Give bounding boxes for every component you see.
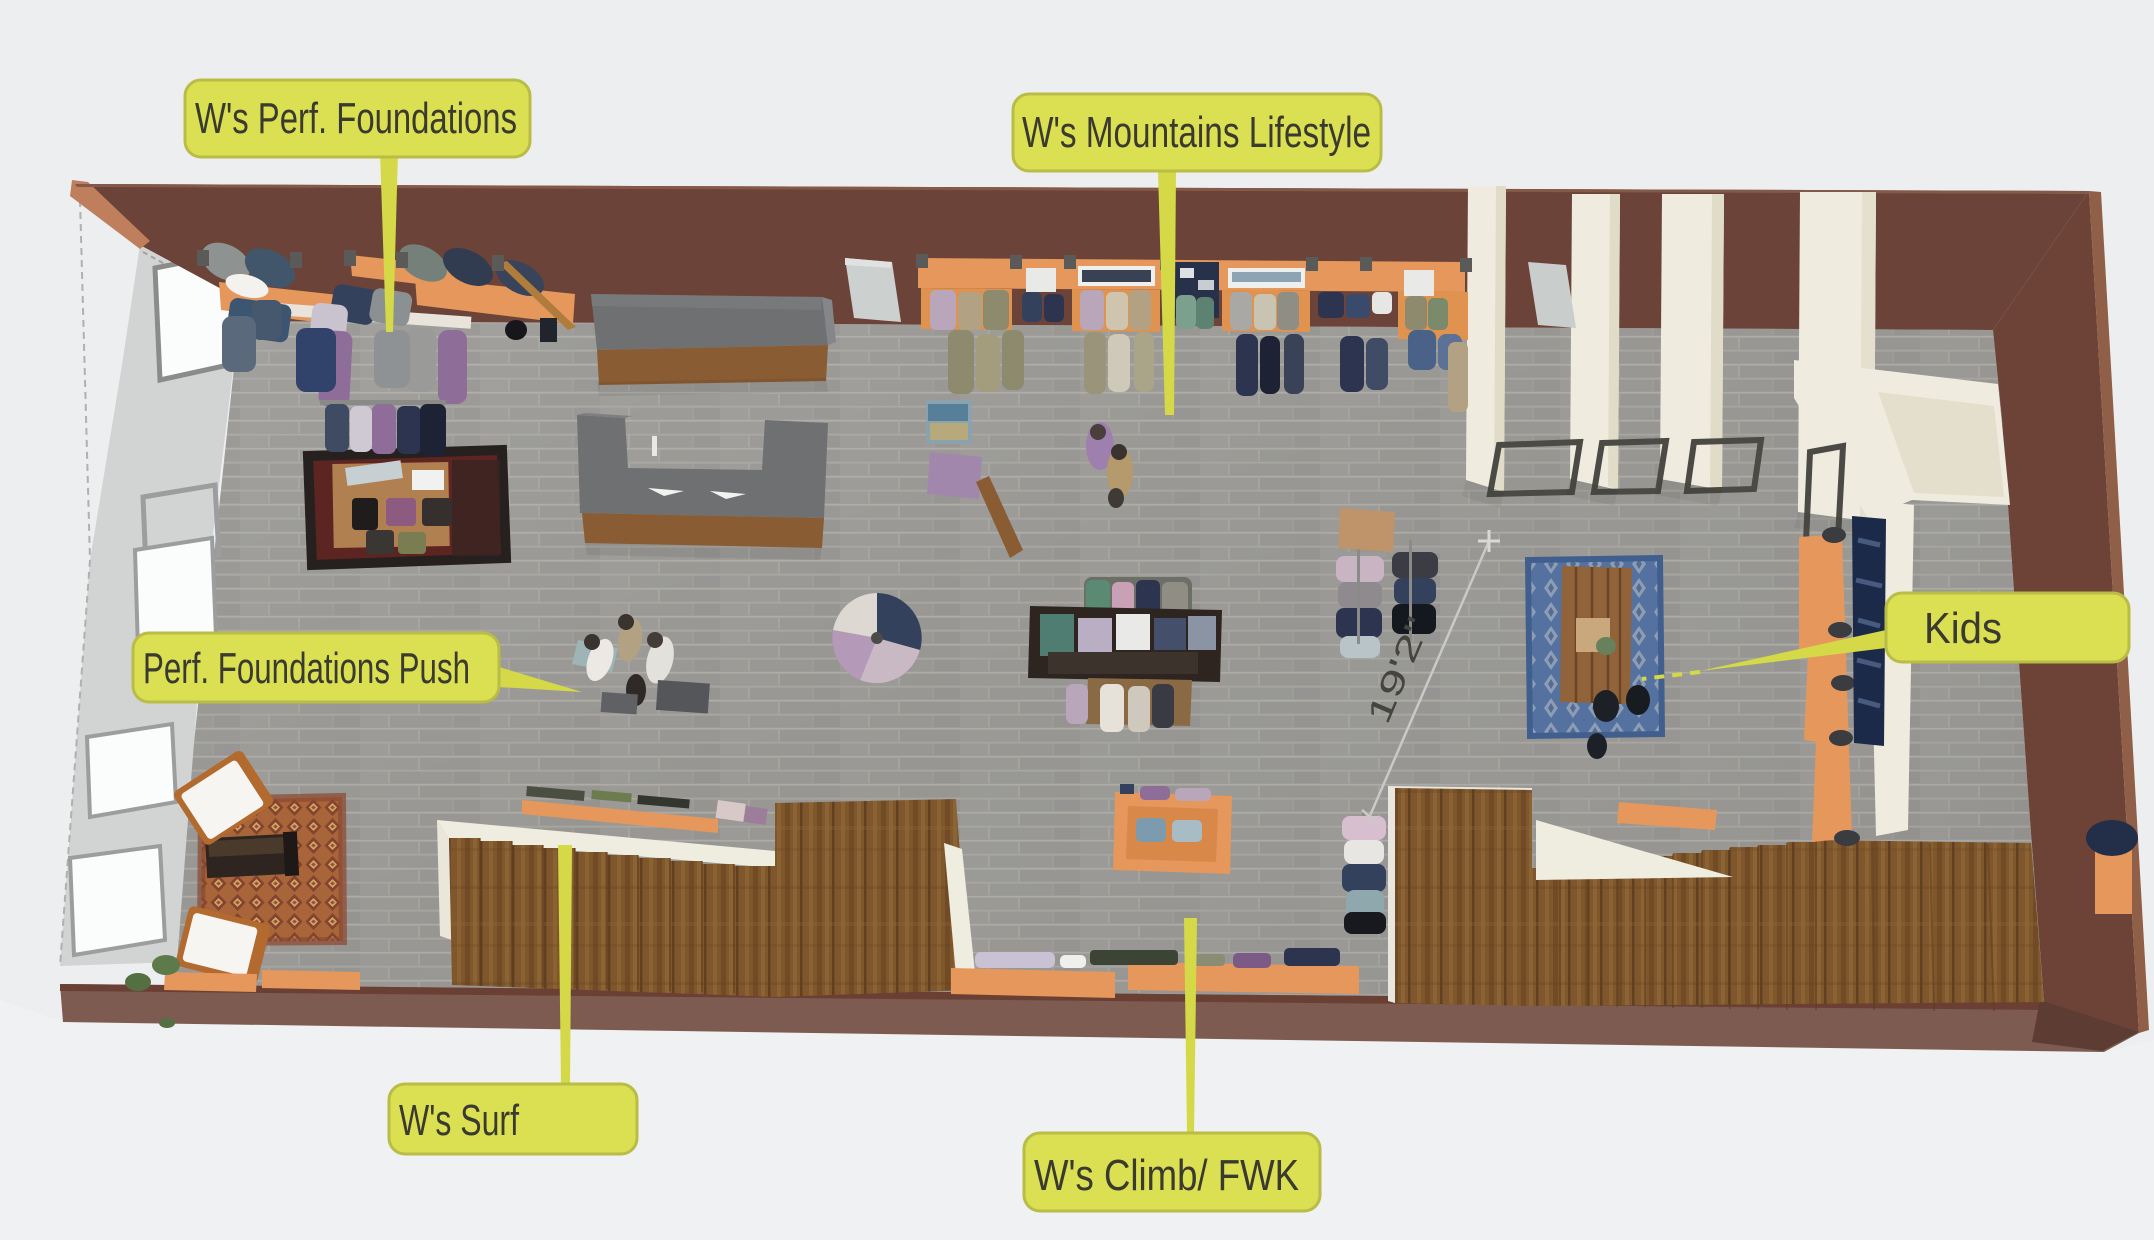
svg-text:W's Mountains Lifestyle: W's Mountains Lifestyle [1022, 108, 1371, 157]
svg-text:W's Perf. Foundations: W's Perf. Foundations [195, 94, 517, 143]
svg-text:Perf. Foundations Push: Perf. Foundations Push [143, 644, 470, 693]
svg-text:W's Climb/ FWK: W's Climb/ FWK [1034, 1151, 1299, 1200]
svg-text:Kids: Kids [1924, 604, 2002, 653]
svg-text:W's Surf: W's Surf [399, 1096, 520, 1145]
